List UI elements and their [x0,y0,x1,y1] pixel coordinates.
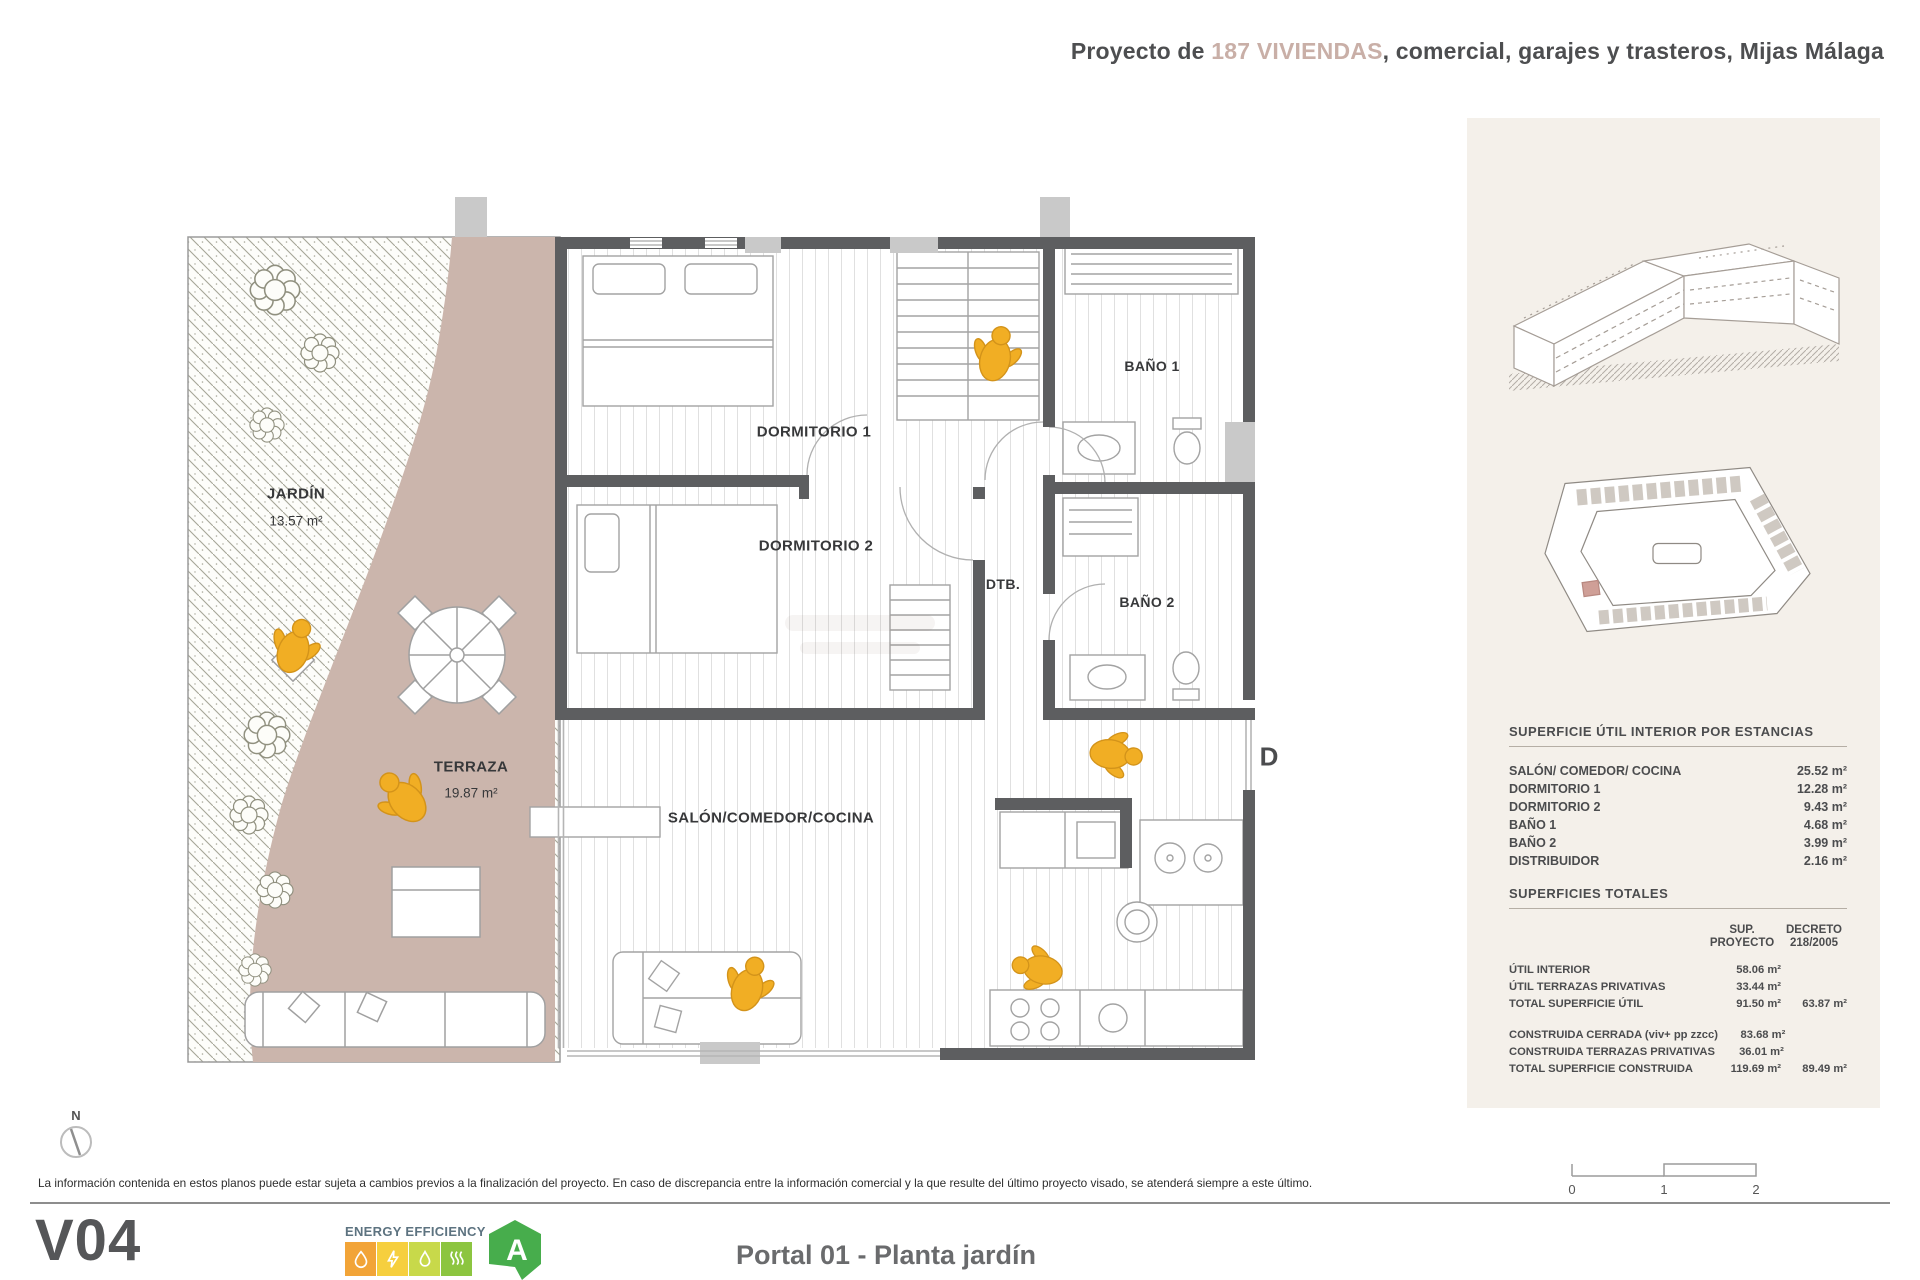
scale-bar: 0 1 2 [1556,1156,1776,1200]
info-sidebar: SUPERFICIE ÚTIL INTERIOR POR ESTANCIAS S… [1467,118,1880,1108]
water-drop-icon [345,1242,376,1276]
table-row: ÚTIL TERRAZAS PRIVATIVAS33.44 m² [1509,979,1847,996]
wardrobe-dormitorio2 [890,585,950,690]
label-jardin-area: 13.57 m² [269,514,322,529]
shower-bano2 [1063,498,1138,556]
scale-tick-1: 1 [1660,1182,1667,1197]
outdoor-sofa [245,992,545,1047]
label-dormitorio2: DORMITORIO 2 [759,538,874,555]
unit-location-marker [1582,580,1600,596]
table-row: BAÑO 14.68 m² [1509,816,1847,834]
compass-n-label: N [71,1108,80,1123]
washing-machine [1117,902,1157,942]
kitchen-bottom-counter [990,990,1243,1046]
label-bano1: BAÑO 1 [1124,358,1179,374]
label-dormitorio1: DORMITORIO 1 [757,424,872,441]
plan-sheet: Proyecto de 187 VIVIENDAS, comercial, ga… [0,0,1920,1280]
energy-tiles [345,1242,486,1276]
table-row: BAÑO 23.99 m² [1509,834,1847,852]
project-title-highlight: 187 VIVIENDAS [1211,38,1382,64]
table-estancias-title: SUPERFICIE ÚTIL INTERIOR POR ESTANCIAS [1509,724,1847,747]
table-totales-title: SUPERFICIES TOTALES [1509,886,1847,909]
bed-dormitorio1 [583,256,773,406]
label-salon: SALÓN/COMEDOR/COCINA [668,810,874,827]
plan-version: V04 [35,1212,141,1270]
col-decreto: DECRETO 218/2005 [1781,924,1847,950]
north-compass: N [50,1106,102,1164]
heat-waves-icon [441,1242,472,1276]
label-dtb: DTB. [986,576,1020,592]
scale-tick-0: 0 [1568,1182,1575,1197]
toilet-bano1 [1173,418,1201,464]
project-title-prefix: Proyecto de [1071,38,1211,64]
table-row: TOTAL SUPERFICIE ÚTIL91.50 m²63.87 m² [1509,996,1847,1013]
scale-tick-2: 2 [1752,1182,1759,1197]
kitchen-sink-counter [1140,820,1243,905]
plan-sheet-title: Portal 01 - Planta jardín [736,1240,1036,1271]
section-marker-d: D [1260,742,1279,773]
disclaimer-text: La información contenida en estos planos… [38,1176,1312,1190]
wardrobe-entry [897,252,1039,420]
table-row: TOTAL SUPERFICIE CONSTRUIDA119.69 m²89.4… [1509,1061,1847,1078]
flame-icon [409,1242,440,1276]
table-row: DORMITORIO 29.43 m² [1509,798,1847,816]
footer-divider [30,1202,1890,1204]
kitchen-island [1000,812,1128,868]
table-row: CONSTRUIDA TERRAZAS PRIVATIVAS36.01 m² [1509,1044,1847,1061]
col-sup-proyecto: SUP. PROYECTO [1703,924,1781,950]
bed-dormitorio2 [577,505,777,653]
floor-plan-drawing [185,190,1275,1070]
table-row: CONSTRUIDA CERRADA (viv+ pp zzcc)83.68 m… [1509,1027,1847,1044]
sofa-salon [613,952,801,1044]
table-totales-header: SUP. PROYECTO DECRETO 218/2005 [1509,924,1847,950]
coffee-table [392,867,480,937]
label-bano2: BAÑO 2 [1119,594,1174,610]
energy-rating-letter: A [506,1234,528,1267]
site-plan-illustration [1525,448,1825,663]
table-row: DORMITORIO 112.28 m² [1509,780,1847,798]
label-jardin: JARDÍN [267,486,325,503]
vanity-bano1 [1063,422,1135,474]
toilet-bano2 [1173,652,1199,700]
energy-efficiency-label: ENERGY EFFICIENCY [345,1220,486,1242]
table-superficies-totales: SUPERFICIES TOTALES SUP. PROYECTO DECRET… [1509,886,1847,1078]
project-title: Proyecto de 187 VIVIENDAS, comercial, ga… [1071,38,1884,65]
shower-bano1 [1065,244,1238,294]
table-row: ÚTIL INTERIOR58.06 m² [1509,962,1847,979]
lightning-bolt-icon [377,1242,408,1276]
project-title-suffix: , comercial, garajes y trasteros, Mijas … [1383,38,1884,64]
building-render-illustration [1489,206,1859,426]
label-terraza-area: 19.87 m² [444,786,497,801]
sideboard [530,807,660,837]
table-row: DISTRIBUIDOR2.16 m² [1509,852,1847,870]
label-terraza: TERRAZA [434,759,508,776]
vanity-bano2 [1070,655,1145,700]
energy-efficiency-badge: ENERGY EFFICIENCY A [345,1220,541,1280]
energy-rating-arrow: A [489,1220,541,1280]
table-superficie-util: SUPERFICIE ÚTIL INTERIOR POR ESTANCIAS S… [1509,724,1847,870]
table-row: SALÓN/ COMEDOR/ COCINA25.52 m² [1509,762,1847,780]
